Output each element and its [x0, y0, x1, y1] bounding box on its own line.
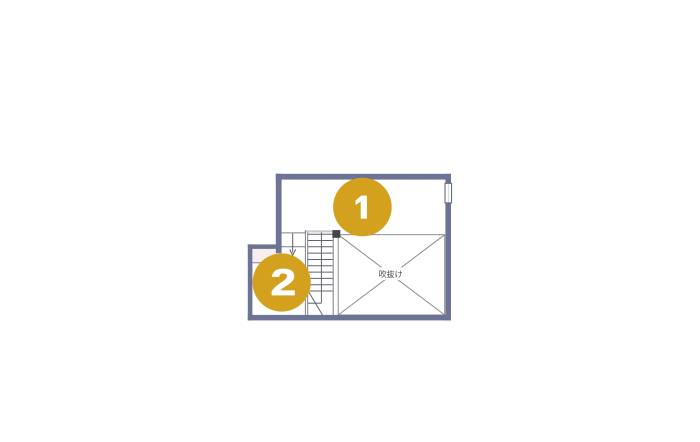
svg-text:2: 2 [271, 262, 297, 303]
svg-text:吹抜け: 吹抜け [379, 269, 403, 279]
